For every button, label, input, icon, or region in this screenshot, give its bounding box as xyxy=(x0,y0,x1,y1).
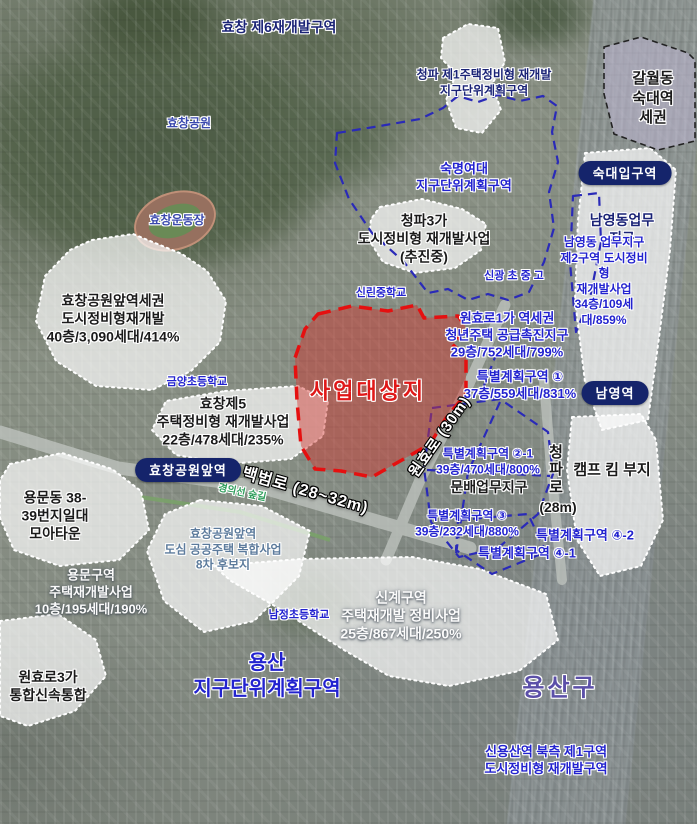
label-special4-1: 특별계획구역 ④-1 xyxy=(478,546,576,563)
label-hyochang-station-area: 효창공원앞역세권 도시정비형재개발 40층/3,090세대/414% xyxy=(47,292,180,347)
map-canvas: 효창 제6재개발구역 청파 제1주택정비형 재개발 지구단위계획구역 갈월동 숙… xyxy=(0,0,697,824)
label-yongmun-zone: 용문구역 주택재개발사업 10층/195세대/190% xyxy=(35,568,148,619)
label-special2-1: 특별계획구역 ②-1 39층/470세대/800% xyxy=(436,446,540,477)
label-wonhyo1ga: 원효로1가 역세권 청년주택 공급촉진지구 29층/752세대/799% xyxy=(445,311,568,362)
label-chungpa1: 청파 제1주택정비형 재개발 지구단위계획구역 xyxy=(417,67,552,98)
label-hyochang6: 효창 제6재개발구역 xyxy=(222,18,337,36)
label-galwoldong: 갈월동 숙대역세권 xyxy=(631,69,675,128)
label-singye-zone: 신계구역 주택재개발 정비사업 25층/867세대/250% xyxy=(340,589,461,644)
label-hyochang5: 효창제5 주택정비형 재개발사업 22층/478세대/235% xyxy=(157,395,290,450)
label-hyochang-stadium: 효창운동장 xyxy=(149,213,204,229)
label-geumyang-school: 금양초등학교 xyxy=(167,375,228,389)
label-8cha-site: 효창공원앞역 도심 공공주택 복합사업 8차 후보지 xyxy=(164,527,281,574)
label-special1: 특별계획구역 ① 37층/559세대/831% xyxy=(464,369,577,403)
label-namjeong-school: 남정초등학교 xyxy=(269,608,330,622)
label-chungpa3: 청파3가 도시정비형 재개발사업 (추진중) xyxy=(358,212,491,267)
zone-camp-kim xyxy=(567,414,663,576)
label-sinrin-school: 신린중학교 xyxy=(356,286,407,300)
label-wonhyo3ga: 원효로3가 통합신속통합 xyxy=(9,668,86,704)
label-special4-2: 특별계획구역 ④-2 xyxy=(536,528,634,545)
road-label-chungpa-width: (28m) xyxy=(539,498,576,516)
label-yongsan-gu: 용산구 xyxy=(522,672,597,703)
label-special3: 특별계획구역 ③ 39층/232세대/880% xyxy=(415,508,519,539)
label-yongsan-district: 용산 지구단위계획구역 xyxy=(193,650,340,702)
label-munbae: 문배업무지구 xyxy=(450,478,527,496)
label-yongmun-moatown: 용문동 38- 39번지일대 모아타운 xyxy=(21,489,88,544)
label-camp-kim: 캠프 킴 부지 xyxy=(573,460,650,480)
road-label-chungpa: 청 파 로 xyxy=(549,444,563,496)
station-badge-hyochang: 효창공원앞역 xyxy=(135,458,241,482)
label-sookmyung: 숙명여대 지구단위계획구역 xyxy=(416,161,512,195)
station-badge-namyeong: 남영역 xyxy=(582,381,649,405)
label-project-site: 사업대상지 xyxy=(310,378,426,407)
label-namyeong-detail: 남영동 업무지구 제2구역 도시정비형 재개발사업 34층/109세대/859% xyxy=(558,235,651,329)
label-shinkwang-school: 신광 초 중 고 xyxy=(484,269,544,283)
station-badge-sukdae: 숙대입구역 xyxy=(579,161,672,185)
label-hyochang-park: 효창공원 xyxy=(167,116,211,132)
label-sinyongsan: 신용산역 북측 제1구역 도시정비형 재개발구역 xyxy=(484,744,607,778)
